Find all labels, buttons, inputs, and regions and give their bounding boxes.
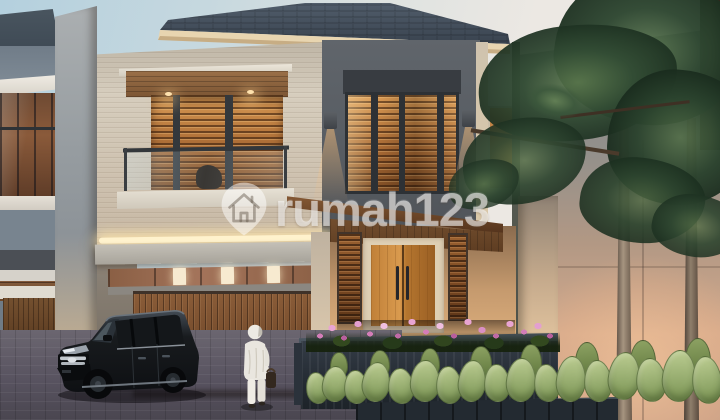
property-render-photo: rumah123	[0, 0, 720, 420]
watermark: rumah123	[220, 176, 520, 242]
map-pin-house-icon	[220, 181, 268, 237]
watermark-brand-text: rumah123	[275, 182, 489, 237]
